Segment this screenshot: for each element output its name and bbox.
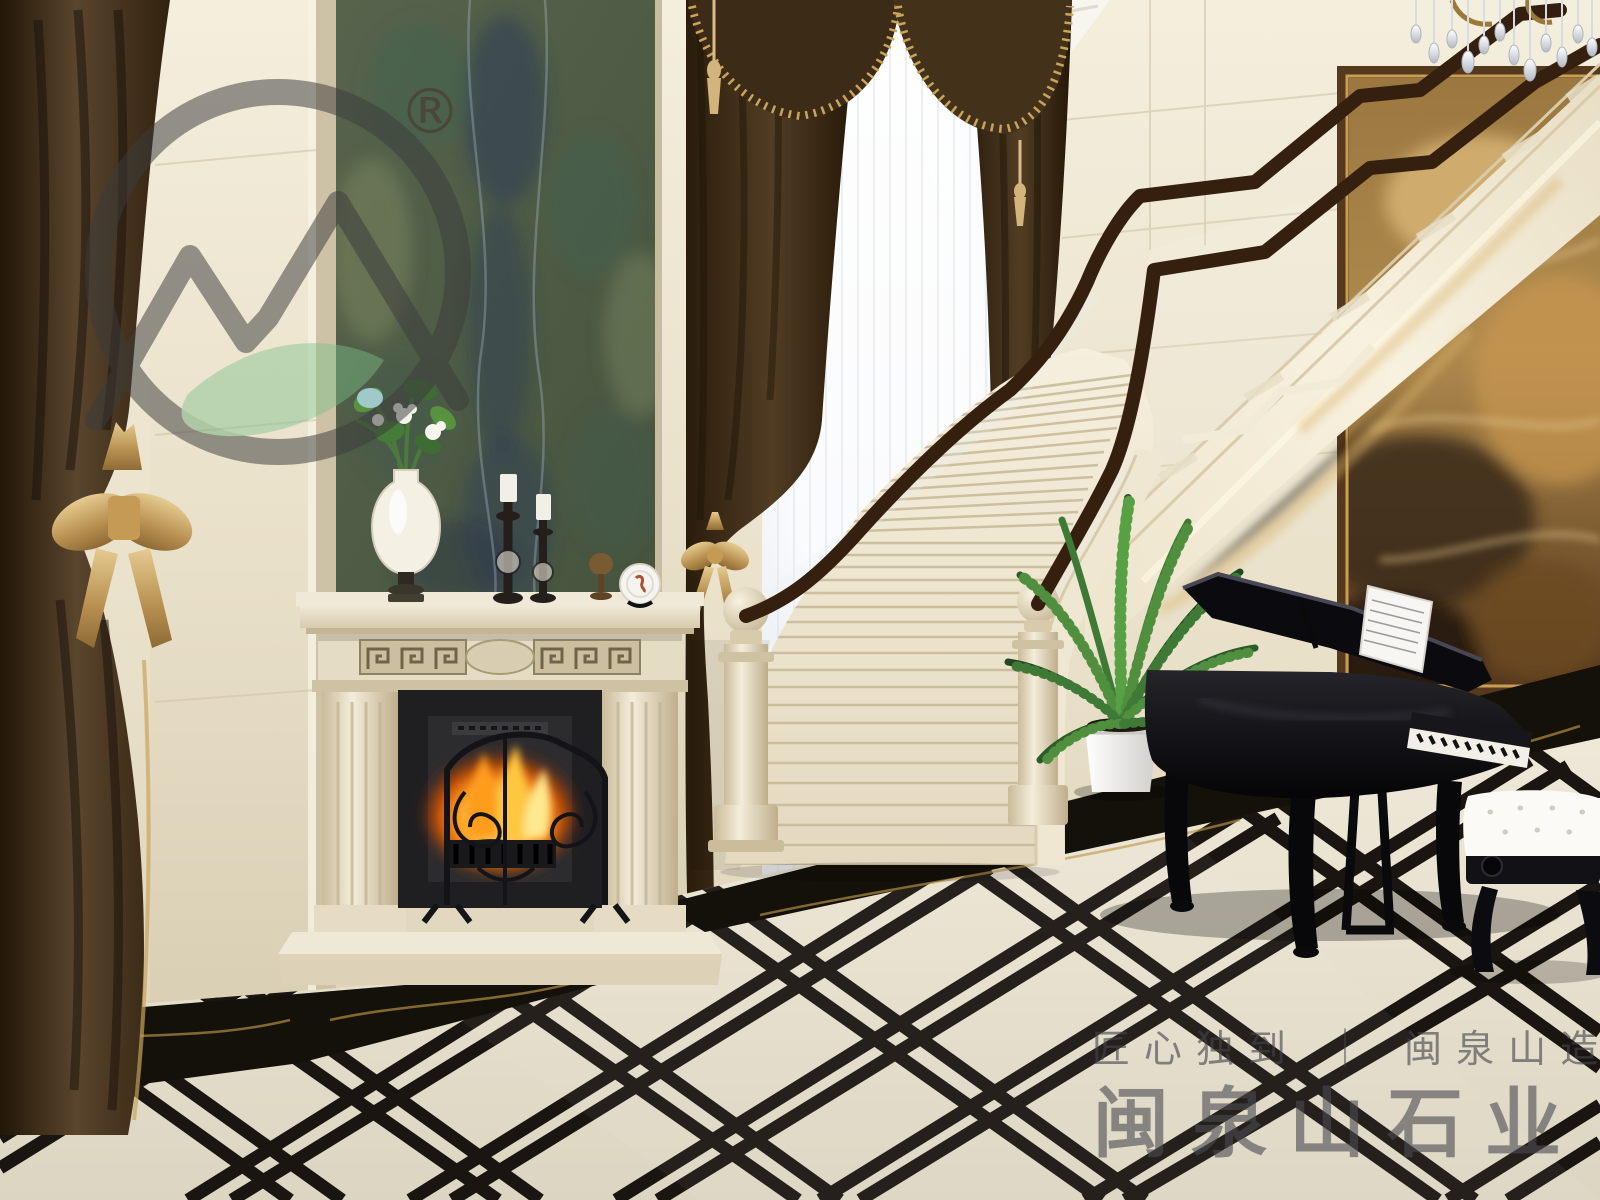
bench-knob <box>1482 856 1502 876</box>
fireplace-column-left <box>322 692 398 932</box>
bench-cushion <box>1463 790 1600 856</box>
render-canvas: ® 匠心独到 ｜ 闽泉山造 闽泉山石业 <box>0 0 1600 1200</box>
registered-trademark: ® <box>399 75 461 148</box>
greek-key-panel-right <box>534 640 640 674</box>
mantel-shelf <box>300 606 700 628</box>
footer-branding: 匠心独到 ｜ 闽泉山造 闽泉山石业 <box>1092 1027 1600 1168</box>
footer-brand-name: 闽泉山石业 <box>1093 1079 1583 1168</box>
footer-tagline: 匠心独到 ｜ 闽泉山造 <box>1092 1027 1600 1071</box>
pilaster-left <box>150 0 336 1010</box>
stair-floor-shadow <box>720 862 1060 882</box>
greek-key-panel-left <box>360 640 466 674</box>
hearth-top <box>278 932 722 954</box>
interior-render-scene: ® 匠心独到 ｜ 闽泉山造 闽泉山石业 <box>0 0 1600 1200</box>
fire-grate <box>446 840 556 868</box>
fireplace-column-right <box>602 692 678 932</box>
hearth-front <box>278 954 722 985</box>
frieze-medallion <box>466 640 534 674</box>
